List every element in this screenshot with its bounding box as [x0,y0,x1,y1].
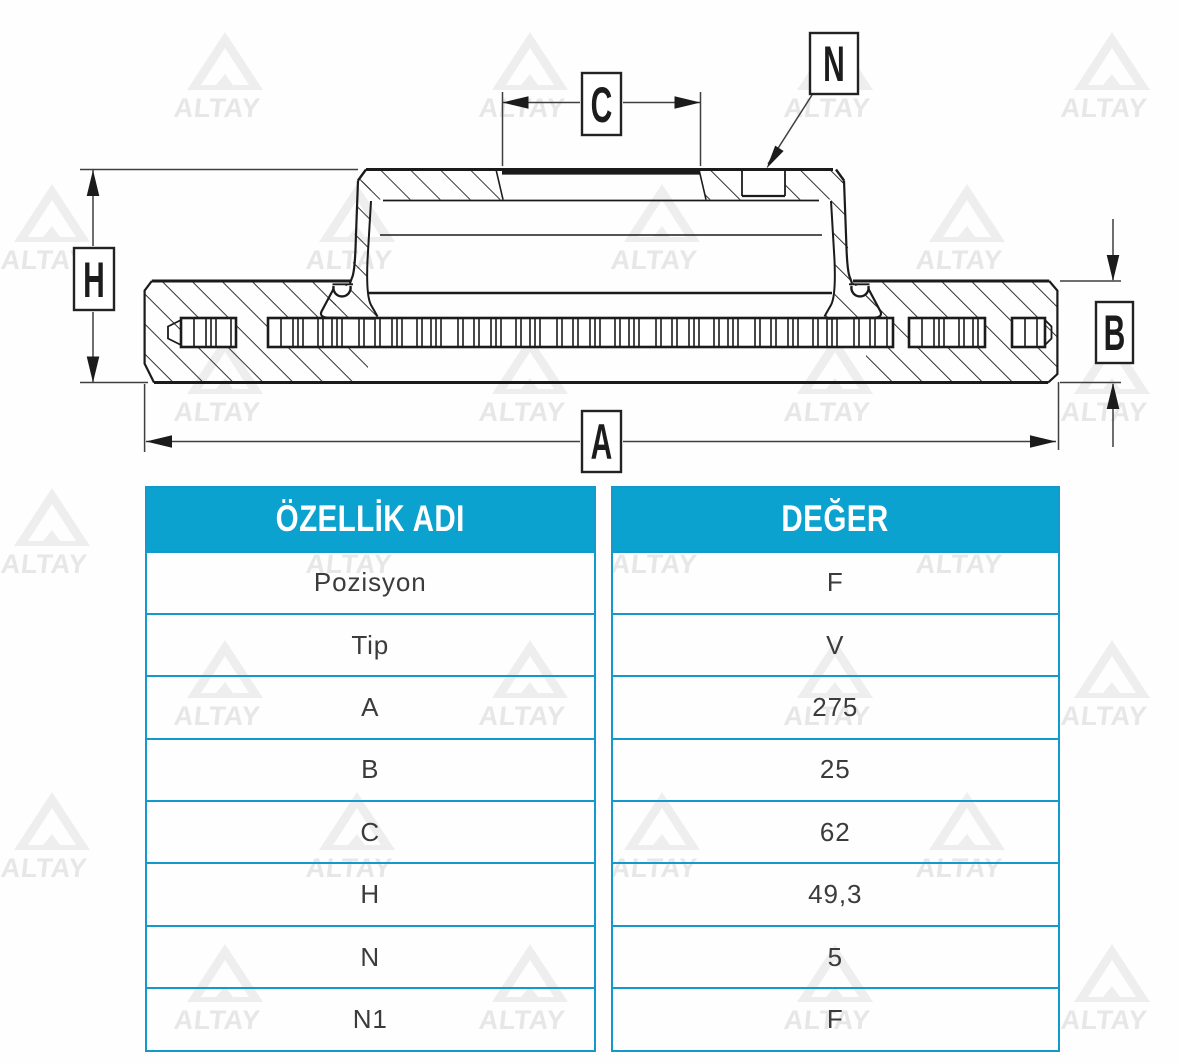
svg-text:A: A [591,414,613,470]
svg-text:N: N [823,36,845,92]
svg-text:H: H [83,252,105,308]
svg-text:C: C [591,77,613,133]
svg-text:B: B [1104,305,1126,361]
